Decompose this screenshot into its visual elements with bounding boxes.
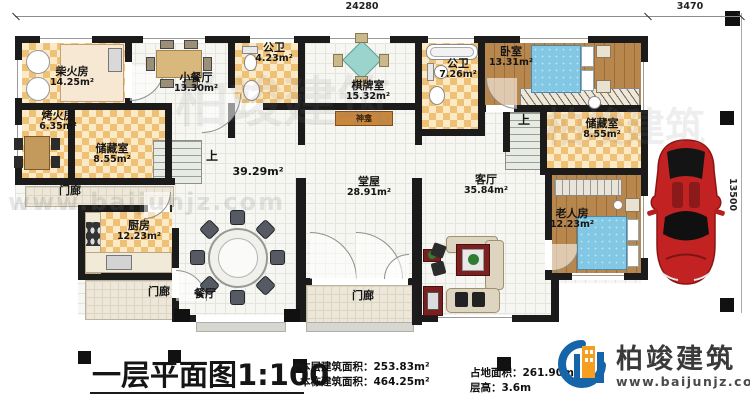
carport-column	[720, 111, 734, 125]
room-label-laorenfang: 老人房 12.23m²	[550, 208, 594, 231]
stove	[86, 222, 100, 246]
wall	[478, 36, 485, 136]
stats-left: 本层建筑面积：253.83m² 本栋建筑面积：464.25m²	[300, 360, 430, 390]
wall	[415, 110, 422, 145]
wall	[228, 36, 235, 88]
room-label-menlang-bottom-left: 门廊	[148, 286, 170, 298]
window	[40, 36, 92, 43]
wall	[298, 36, 305, 110]
room-label-chucangshi-right: 储藏室 8.55m²	[583, 118, 621, 141]
stairs-up-label-right: 上	[518, 114, 530, 127]
chair	[190, 250, 205, 265]
outside-area-left	[15, 210, 78, 322]
chair	[184, 40, 198, 49]
window	[520, 36, 588, 43]
chair	[203, 57, 212, 71]
dimension-line-top	[15, 16, 741, 17]
wall	[540, 112, 547, 174]
room-label-canting: 餐厅	[194, 288, 216, 300]
dimension-width-carport: 3470	[677, 1, 703, 12]
round-dining-table-inner	[218, 238, 258, 278]
window	[438, 315, 512, 322]
dimension-height-right: 13500	[727, 178, 738, 211]
wall	[412, 178, 422, 325]
dimension-width-total: 24280	[345, 1, 378, 12]
wall	[551, 280, 559, 322]
room-label-qipaishi: 棋牌室 15.32m²	[346, 80, 390, 103]
chair	[230, 290, 245, 305]
car-top-view	[646, 137, 726, 287]
kitchen-sink	[106, 255, 132, 270]
wall	[165, 103, 172, 185]
bed	[531, 45, 581, 93]
wall	[78, 205, 85, 280]
car	[646, 137, 726, 287]
chair	[333, 54, 343, 67]
window	[641, 62, 648, 110]
chair	[160, 40, 174, 49]
window	[15, 60, 22, 98]
room-label-woshi: 卧室 13.31m²	[489, 46, 533, 69]
room-label-menlang-left: 门廊	[59, 185, 81, 197]
window	[572, 273, 624, 280]
nightstand	[625, 198, 640, 212]
shrine-cabinet: 神龛	[335, 111, 393, 126]
wall	[298, 103, 422, 110]
pillow	[627, 245, 639, 267]
chair	[230, 210, 245, 225]
stove-pot	[26, 77, 50, 101]
stat-building-area: 本栋建筑面积：464.25m²	[300, 375, 430, 390]
room-label-kaohuofang: 烤火房 6.35m²	[39, 110, 77, 133]
room-label-keting: 客厅 35.84m²	[464, 174, 508, 197]
wall	[78, 273, 179, 280]
porch-column	[78, 351, 91, 364]
corner-column	[174, 309, 190, 322]
wall	[15, 178, 175, 185]
pillow	[581, 70, 594, 91]
eave-line	[741, 13, 742, 313]
chair	[270, 250, 285, 265]
chair	[14, 138, 23, 150]
room-label-tangwu: 堂屋 28.91m²	[347, 176, 391, 199]
chair	[51, 138, 60, 150]
room-label-xiaocanting: 小餐厅 13.30m²	[174, 72, 218, 95]
entry-steps-dining	[196, 322, 286, 332]
chair	[14, 156, 23, 168]
sink	[243, 80, 260, 101]
brand-logo-icon	[556, 338, 608, 396]
window	[428, 36, 474, 43]
appliance	[588, 96, 601, 109]
corner-column	[284, 309, 300, 322]
wall	[408, 278, 422, 285]
nightstand	[596, 80, 611, 93]
stove-pot	[26, 50, 50, 74]
chair	[379, 54, 389, 67]
pillow	[627, 219, 639, 241]
wall	[298, 278, 312, 285]
chair	[51, 156, 60, 168]
brand-url: www.baijunjz.com	[616, 374, 750, 389]
stairs-up-label-left: 上	[206, 150, 218, 163]
wall	[15, 103, 172, 110]
kitchen-sink	[108, 48, 122, 72]
room-label-menlang-center: 门廊	[352, 290, 374, 302]
bathtub-inner	[430, 47, 474, 57]
outside-area-right	[559, 283, 641, 322]
brand-text-block: 柏竣建筑 www.baijunjz.com	[616, 346, 750, 389]
chair	[146, 57, 155, 71]
floor-plan-canvas: 柏竣建筑 www.baijunjz.com 柏竣建筑	[0, 0, 750, 407]
main-door-opening	[312, 278, 408, 285]
stat-floor-area: 本层建筑面积：253.83m²	[300, 360, 430, 375]
nightstand	[613, 200, 623, 210]
brand-name: 柏竣建筑	[616, 346, 750, 374]
cushion	[455, 292, 468, 307]
door-opening	[545, 240, 552, 270]
label-open-area: 39.29m²	[232, 166, 283, 178]
room-label-chaihuofang: 柴火房 14.25m²	[50, 66, 94, 89]
fire-table	[24, 136, 50, 170]
plan-title: 一层平面图1:100	[92, 352, 329, 394]
sink	[429, 86, 445, 105]
brand-logo: 柏竣建筑 www.baijunjz.com	[556, 338, 750, 396]
tv	[427, 292, 439, 310]
wall	[415, 129, 485, 136]
room-label-gongwei-2: 公卫 7.26m²	[439, 58, 477, 81]
wall	[540, 168, 648, 175]
room-label-gongwei-1: 公卫 4.23m²	[255, 42, 293, 65]
carport-column	[720, 298, 734, 312]
plant	[468, 254, 479, 265]
wall	[298, 110, 305, 145]
entry-steps-center	[306, 322, 414, 332]
room-label-chucangshi-left: 储藏室 8.55m²	[93, 143, 131, 166]
cushion	[472, 292, 485, 307]
pillow	[581, 46, 594, 67]
nightstand	[596, 45, 611, 58]
wall	[296, 178, 306, 322]
shrine-label: 神龛	[356, 114, 372, 123]
chair	[355, 33, 368, 43]
wardrobe	[554, 179, 622, 196]
room-label-chufang: 厨房 12.23m²	[117, 220, 161, 243]
toilet	[427, 63, 434, 81]
wall	[503, 112, 510, 152]
chair	[160, 79, 174, 88]
